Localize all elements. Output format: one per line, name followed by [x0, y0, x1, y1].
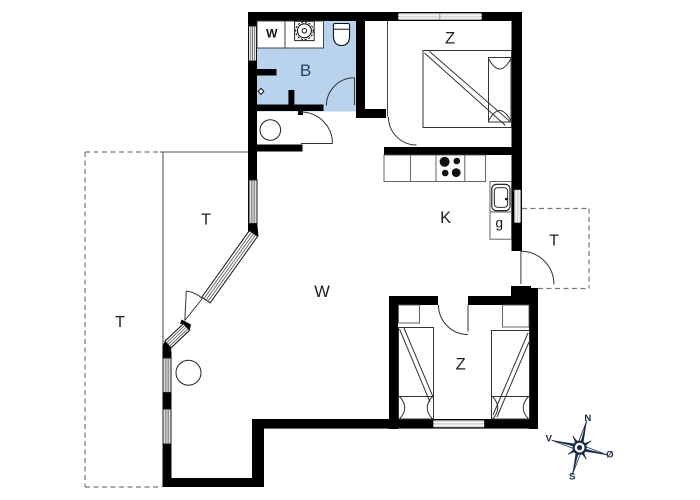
svg-text:S: S — [569, 472, 575, 483]
svg-text:V: V — [546, 434, 553, 445]
svg-text:K: K — [440, 209, 451, 227]
svg-text:Z: Z — [456, 356, 466, 374]
svg-text:g: g — [496, 215, 504, 230]
svg-text:T: T — [201, 211, 211, 228]
svg-text:B: B — [300, 61, 311, 80]
svg-text:T: T — [115, 314, 125, 331]
svg-text:Z: Z — [445, 29, 455, 47]
svg-text:T: T — [549, 233, 559, 250]
svg-text:Ø: Ø — [606, 450, 613, 461]
svg-text:N: N — [584, 413, 591, 424]
svg-text:W: W — [266, 26, 278, 40]
svg-text:W: W — [314, 283, 330, 301]
